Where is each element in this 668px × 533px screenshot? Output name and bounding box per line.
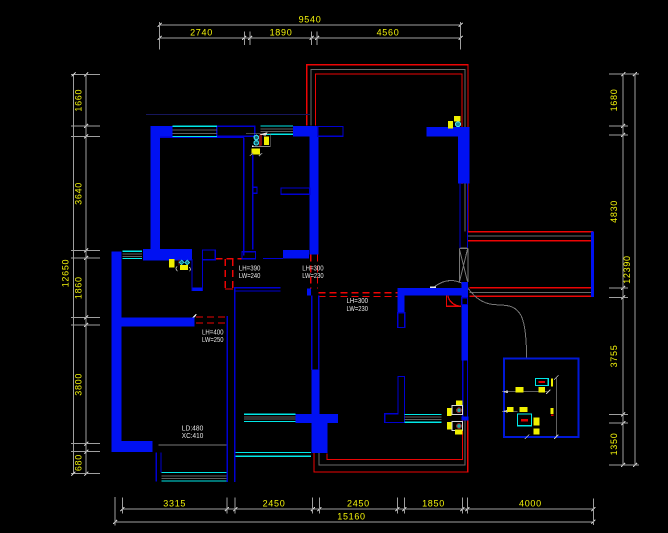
svg-text:4560: 4560 — [377, 27, 400, 37]
svg-text:15160: 15160 — [337, 511, 366, 521]
svg-text:4830: 4830 — [609, 200, 619, 223]
svg-text:1890: 1890 — [270, 27, 293, 37]
svg-text:LW=250: LW=250 — [202, 337, 224, 344]
svg-text:LW=230: LW=230 — [347, 306, 369, 313]
svg-text:LH=300: LH=300 — [347, 298, 369, 305]
svg-text:2740: 2740 — [190, 27, 213, 37]
svg-text:XC:410: XC:410 — [182, 433, 204, 440]
svg-text:1680: 1680 — [609, 89, 619, 112]
svg-text:3800: 3800 — [73, 373, 83, 396]
svg-text:LW=230: LW=230 — [302, 273, 324, 280]
svg-text:LH=400: LH=400 — [202, 329, 224, 336]
svg-text:3640: 3640 — [73, 182, 83, 205]
svg-text:LW=240: LW=240 — [239, 273, 261, 280]
svg-text:LH=390: LH=390 — [239, 265, 261, 272]
svg-text:1660: 1660 — [73, 89, 83, 112]
svg-text:LD:480: LD:480 — [182, 425, 204, 432]
svg-text:12650: 12650 — [61, 259, 71, 288]
svg-text:1860: 1860 — [73, 276, 83, 299]
svg-text:12390: 12390 — [622, 255, 632, 284]
svg-text:4000: 4000 — [519, 499, 542, 509]
svg-text:3755: 3755 — [609, 345, 619, 368]
svg-text:1850: 1850 — [422, 499, 445, 509]
svg-text:9540: 9540 — [299, 14, 322, 24]
svg-text:LH=300: LH=300 — [302, 265, 324, 272]
svg-text:3315: 3315 — [163, 499, 186, 509]
svg-text:1350: 1350 — [609, 433, 619, 456]
svg-text:680: 680 — [73, 454, 83, 471]
svg-text:2450: 2450 — [263, 499, 286, 509]
svg-text:2450: 2450 — [347, 499, 370, 509]
